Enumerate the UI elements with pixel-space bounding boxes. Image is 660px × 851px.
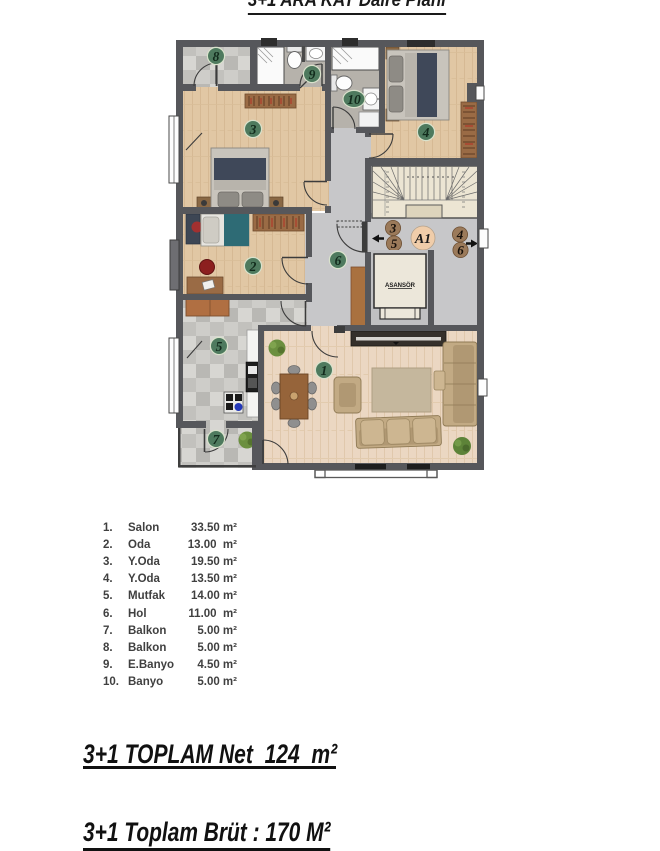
svg-text:4: 4: [456, 227, 464, 242]
svg-text:3: 3: [389, 221, 397, 236]
svg-text:3: 3: [249, 122, 257, 137]
svg-text:4: 4: [422, 125, 430, 140]
svg-text:6: 6: [457, 243, 464, 258]
svg-text:ASANSÖR: ASANSÖR: [385, 282, 416, 289]
svg-text:6: 6: [335, 253, 342, 268]
svg-text:5: 5: [216, 339, 223, 354]
svg-text:A1: A1: [414, 232, 431, 247]
svg-text:8: 8: [213, 49, 220, 64]
svg-text:9: 9: [309, 67, 316, 82]
svg-text:5: 5: [391, 236, 398, 251]
svg-text:1: 1: [321, 363, 328, 378]
svg-text:2: 2: [249, 259, 257, 274]
svg-text:10: 10: [347, 92, 361, 107]
